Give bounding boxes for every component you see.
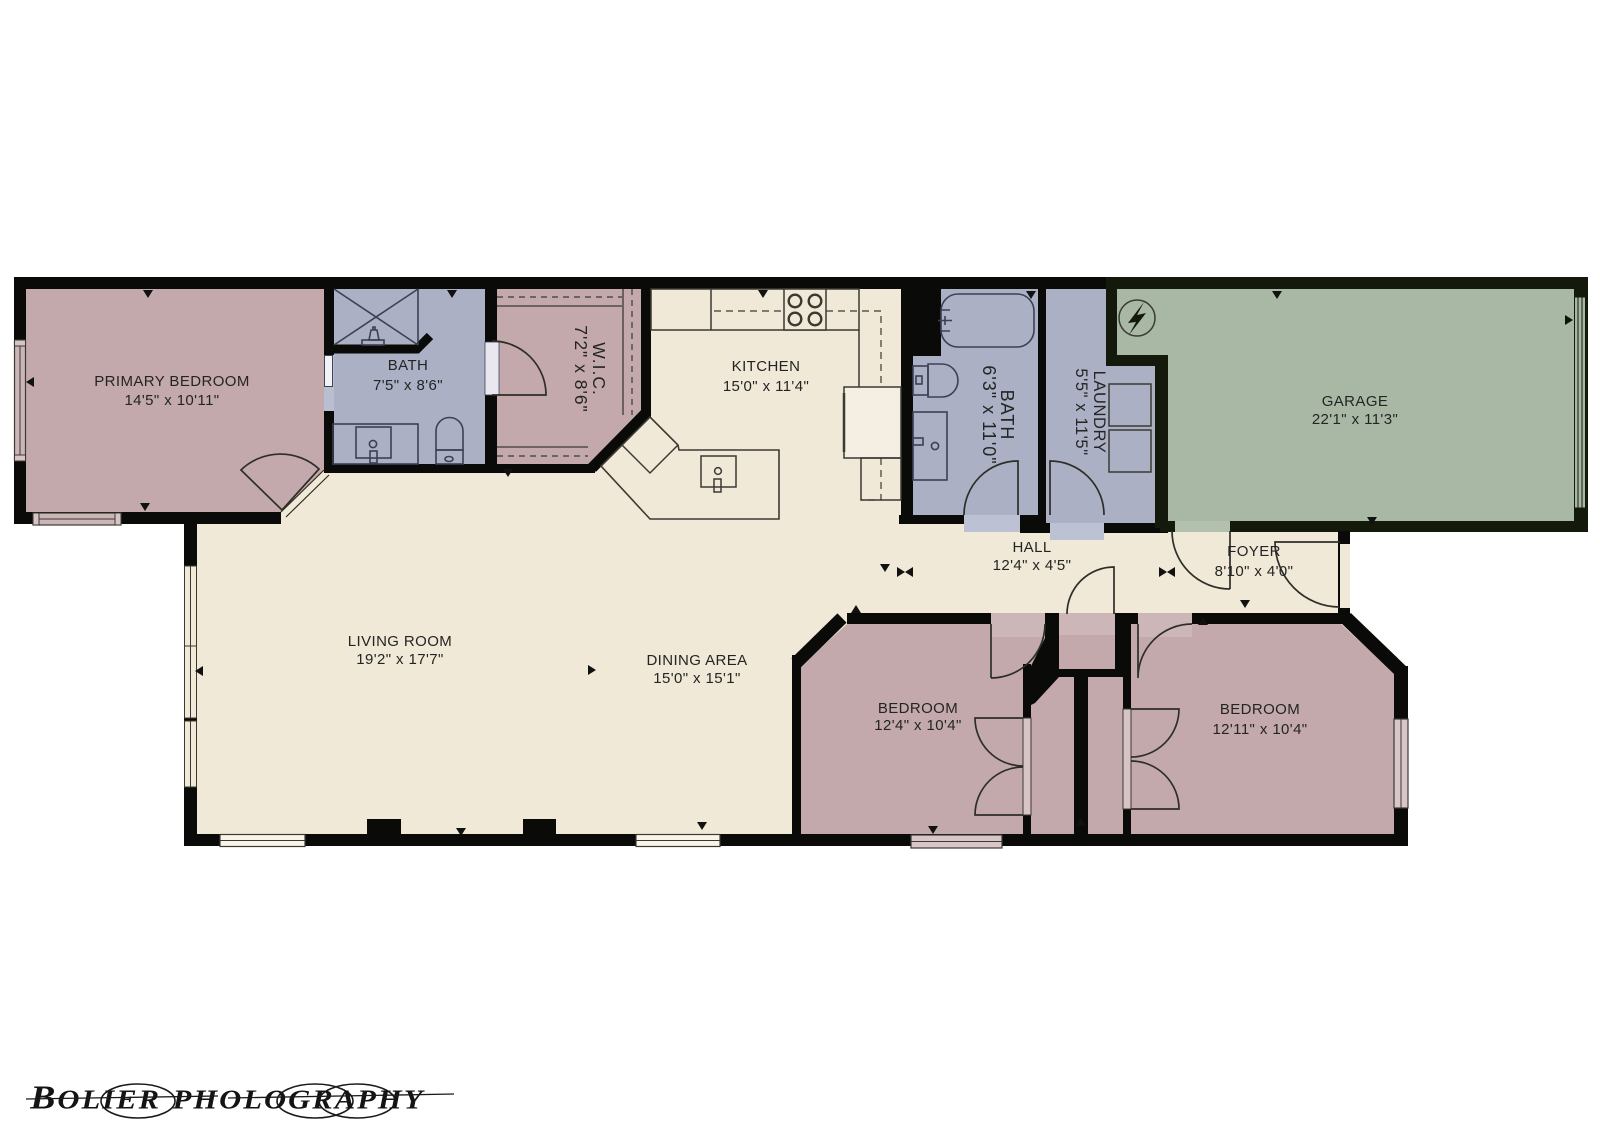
svg-text:5'5" x 11'5": 5'5" x 11'5" bbox=[1072, 368, 1090, 455]
svg-text:8'10" x 4'0": 8'10" x 4'0" bbox=[1215, 563, 1294, 580]
svg-text:7'2" x 8'6": 7'2" x 8'6" bbox=[571, 325, 591, 413]
svg-text:BEDROOM: BEDROOM bbox=[1220, 701, 1300, 718]
svg-text:HALL: HALL bbox=[1012, 539, 1051, 556]
svg-text:15'0" x 15'1": 15'0" x 15'1" bbox=[653, 670, 740, 687]
svg-text:LAUNDRY: LAUNDRY bbox=[1090, 371, 1108, 454]
svg-text:W.I.C.: W.I.C. bbox=[589, 342, 609, 396]
svg-text:BATH: BATH bbox=[997, 390, 1017, 441]
svg-text:FOYER: FOYER bbox=[1227, 543, 1281, 560]
svg-text:6'3" x 11'0": 6'3" x 11'0" bbox=[979, 365, 999, 464]
svg-text:12'4" x 4'5": 12'4" x 4'5" bbox=[993, 557, 1072, 574]
svg-text:15'0" x 11'4": 15'0" x 11'4" bbox=[723, 378, 809, 395]
svg-text:BATH: BATH bbox=[388, 357, 429, 374]
svg-text:12'4" x 10'4": 12'4" x 10'4" bbox=[874, 717, 961, 734]
svg-text:7'5" x 8'6": 7'5" x 8'6" bbox=[373, 377, 443, 394]
svg-text:GARAGE: GARAGE bbox=[1322, 393, 1389, 410]
svg-text:BOLIER PHOLOGRAPHY: BOLIER PHOLOGRAPHY bbox=[29, 1078, 426, 1116]
svg-text:LIVING ROOM: LIVING ROOM bbox=[348, 633, 452, 650]
svg-text:DINING AREA: DINING AREA bbox=[646, 652, 747, 669]
svg-text:12'11" x 10'4": 12'11" x 10'4" bbox=[1212, 721, 1307, 738]
svg-text:19'2" x 17'7": 19'2" x 17'7" bbox=[356, 651, 443, 668]
svg-text:14'5" x 10'11": 14'5" x 10'11" bbox=[124, 392, 219, 409]
svg-text:PRIMARY BEDROOM: PRIMARY BEDROOM bbox=[94, 373, 249, 390]
svg-text:BEDROOM: BEDROOM bbox=[878, 700, 958, 717]
svg-text:KITCHEN: KITCHEN bbox=[732, 358, 801, 375]
svg-text:22'1" x 11'3": 22'1" x 11'3" bbox=[1312, 411, 1398, 428]
